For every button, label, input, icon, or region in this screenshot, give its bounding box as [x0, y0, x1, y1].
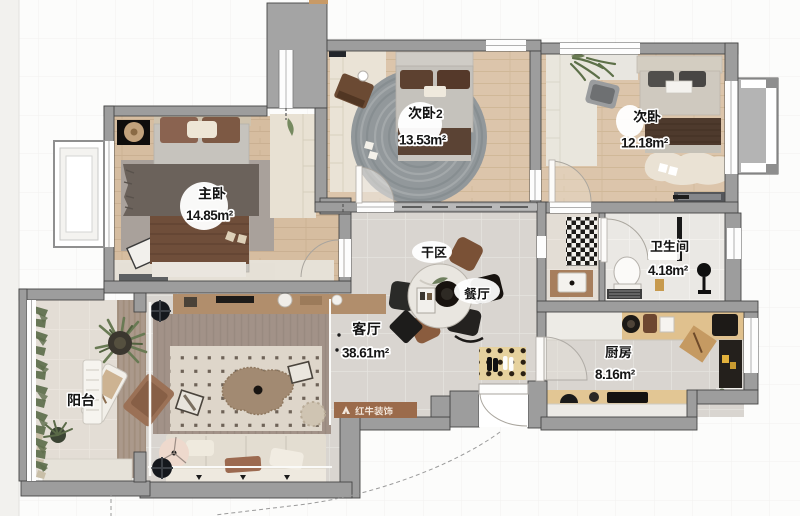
- svg-text:14.85m²: 14.85m²: [186, 208, 234, 223]
- svg-text:12.18m²: 12.18m²: [621, 136, 669, 151]
- svg-text:8.16m²: 8.16m²: [595, 367, 636, 382]
- svg-text:4.18m²: 4.18m²: [648, 263, 689, 278]
- svg-text:38.61m²: 38.61m²: [342, 346, 390, 361]
- svg-text:13.53m²: 13.53m²: [399, 133, 447, 148]
- svg-text:2: 2: [436, 107, 443, 121]
